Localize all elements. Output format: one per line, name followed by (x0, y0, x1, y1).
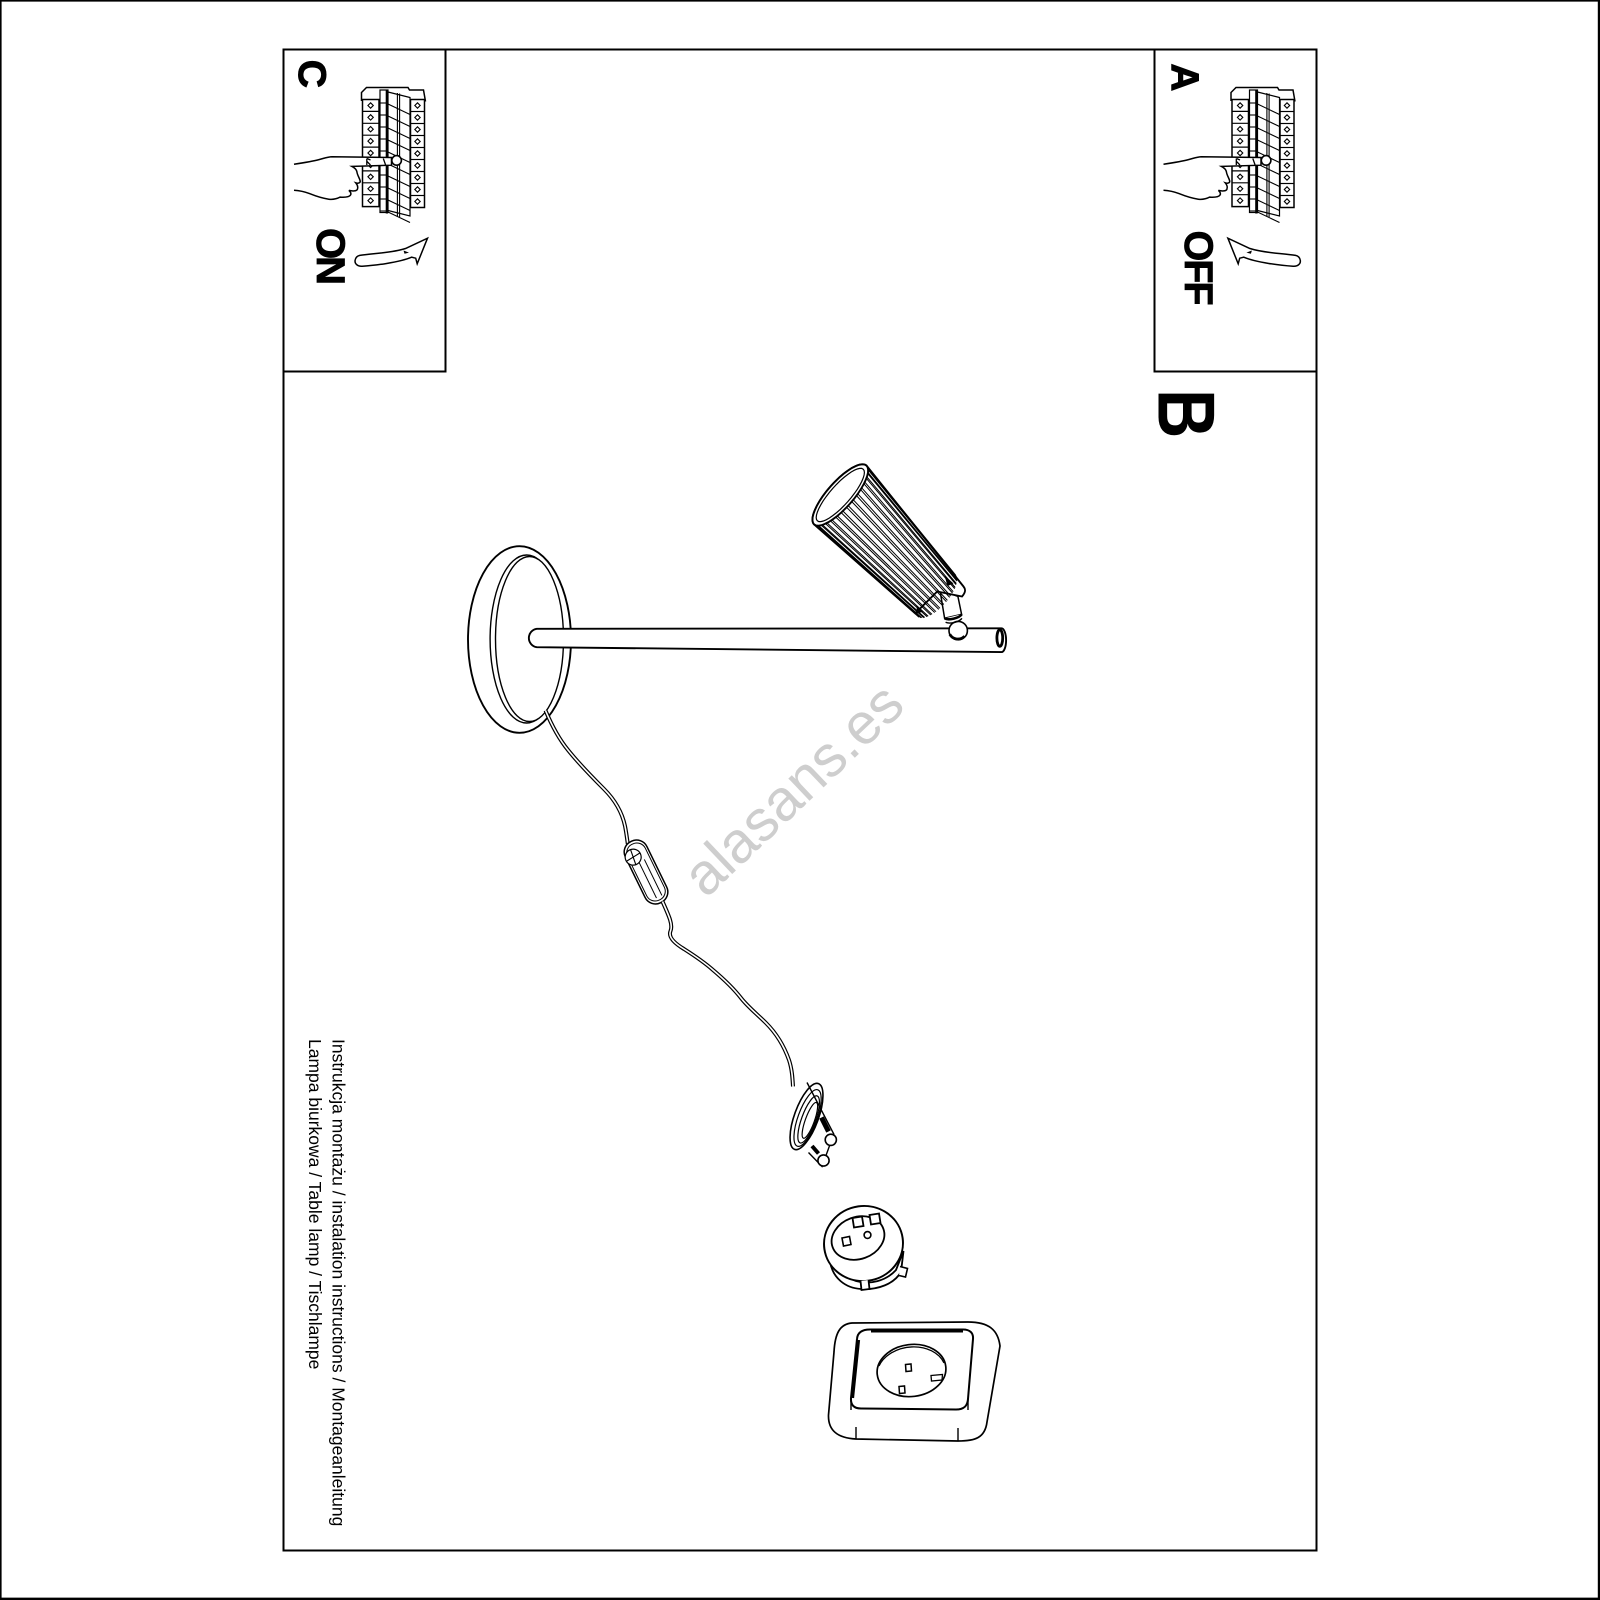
svg-text:Lampa biurkowa / Table lamp /: Lampa biurkowa / Table lamp / Tischlampe (305, 1039, 325, 1369)
svg-text:C: C (290, 60, 333, 88)
svg-text:OFF: OFF (1176, 231, 1220, 305)
svg-text:A: A (1163, 64, 1206, 92)
svg-text:ON: ON (308, 228, 352, 283)
svg-text:alasans.es: alasans.es (670, 670, 916, 908)
svg-text:Instrukcja montażu / instalati: Instrukcja montażu / instalation instruc… (329, 1039, 349, 1526)
svg-text:B: B (1141, 389, 1232, 438)
